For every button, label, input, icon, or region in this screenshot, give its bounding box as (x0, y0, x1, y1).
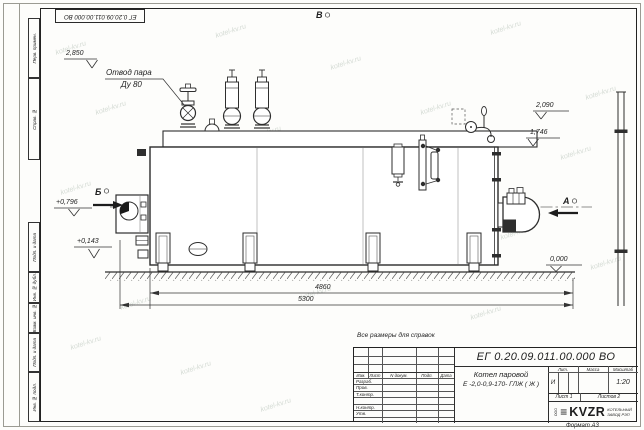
elevation-ground: 0,000 (550, 256, 568, 263)
tb-col-dokum: N докум. (382, 372, 416, 378)
view-mark-b: Б (95, 187, 101, 197)
company-logo: KVZR (569, 405, 605, 419)
tb-col-podp: Подп. (416, 372, 438, 378)
tb-lit-value: И (548, 372, 558, 393)
furnace-door (116, 195, 148, 233)
elevation-left-upper: +0,796 (56, 199, 78, 206)
tb-line (438, 348, 439, 423)
tb-sheets-info: Листов 2 (580, 393, 638, 401)
elevation-steam: 2,850 (66, 50, 84, 57)
tb-col-data: Дата (438, 372, 454, 378)
foot (366, 233, 380, 271)
steam-outlet-leader (105, 79, 185, 106)
view-mark-a: А (563, 196, 570, 206)
format-label: Формат А3 (566, 423, 599, 429)
manhole (189, 243, 207, 256)
tb-row-blank (354, 397, 384, 404)
logo-bars-icon: ≡ (560, 405, 567, 419)
dimension-length-overall: 5300 (298, 296, 314, 303)
flue-stack (615, 92, 627, 306)
elevation-left-lower: +0,143 (77, 238, 99, 245)
view-v-rotation-mark (325, 13, 329, 17)
view-mark-v: В (316, 10, 323, 20)
dimension-length-feet: 4860 (315, 284, 331, 291)
tb-product-name-2: Е -2,0-0,9-170- ГЛЖ ( Ж ) (454, 379, 548, 390)
title-block: Изм. Лист N докум. Подп. Дата Разраб. Пр… (353, 347, 637, 422)
burner (498, 188, 540, 233)
steam-valve (180, 84, 196, 127)
safety-valve-1 (224, 70, 241, 128)
tb-line (416, 348, 417, 423)
company-name-line2: ЗАВОД РЭП (607, 412, 629, 417)
tb-company-cell: ООО ≡ KVZR КОТЕЛЬНЫЙ ЗАВОД РЭП (548, 401, 638, 423)
foot (467, 233, 481, 271)
tb-sheet-info: Лист 1 (548, 393, 580, 401)
tb-scale-value: 1:20 (608, 372, 638, 393)
foot (243, 233, 257, 271)
ground-line (105, 272, 575, 281)
dome-fitting (205, 119, 219, 131)
tb-row-utv: Утв. (354, 410, 384, 417)
steam-outlet-label-line1: Отвод пара (106, 68, 152, 77)
tb-line (354, 356, 454, 357)
tb-line (354, 417, 454, 418)
tb-line (558, 372, 559, 393)
tb-line (568, 372, 569, 393)
reference-note: Все размеры для справок (357, 332, 435, 339)
tb-line (354, 364, 454, 365)
foot (156, 233, 170, 271)
tb-row-prov: Пров. (354, 384, 384, 391)
logo-ooo-prefix: ООО (554, 408, 558, 416)
elevation-right-upper: 2,090 (536, 102, 554, 109)
elevation-right-lower: 1,746 (530, 129, 548, 136)
tb-mass-label: Масса (578, 366, 608, 372)
steam-outlet-label-line2: Ду 80 (121, 80, 142, 89)
safety-valve-2 (254, 70, 271, 128)
steam-header (163, 131, 537, 147)
tb-doc-number: ЕГ 0.20.09.011.00.000 ВО (454, 348, 638, 366)
blueprint-page: kotel-kv.ru kotel-kv.ru kotel-kv.ru kote… (0, 0, 644, 430)
